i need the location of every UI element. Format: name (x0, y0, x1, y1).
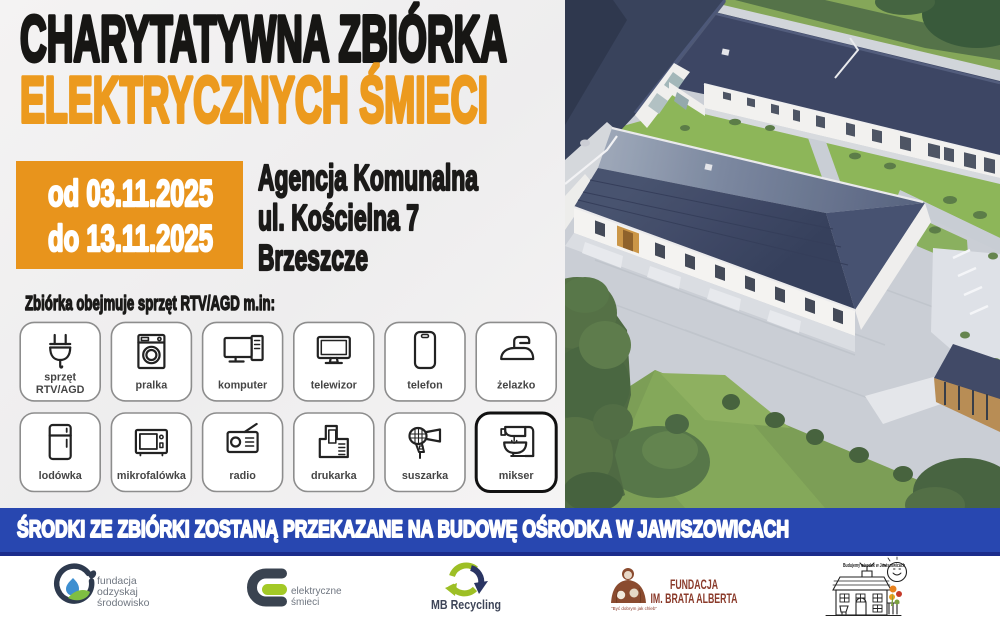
svg-text:RTV/AGD: RTV/AGD (36, 384, 85, 396)
svg-text:mikrofalówka: mikrofalówka (117, 470, 187, 482)
svg-text:telewizor: telewizor (311, 379, 358, 391)
svg-text:radio: radio (229, 470, 256, 482)
svg-text:ŚRODKI ZE ZBIÓRKI ZOSTANĄ PRZE: ŚRODKI ZE ZBIÓRKI ZOSTANĄ PRZEKAZANE NA … (17, 515, 789, 543)
svg-text:mikser: mikser (499, 470, 535, 482)
svg-text:Agencja Komunalna: Agencja Komunalna (258, 157, 479, 198)
svg-text:komputer: komputer (218, 379, 268, 391)
svg-text:od 03.11.2025: od 03.11.2025 (48, 173, 213, 214)
svg-text:sprzęt: sprzęt (44, 371, 76, 383)
svg-text:śmieci: śmieci (291, 597, 319, 608)
svg-text:telefon: telefon (407, 379, 442, 391)
svg-text:środowisko: środowisko (97, 597, 150, 609)
svg-text:żelazko: żelazko (497, 379, 536, 391)
svg-text:drukarka: drukarka (311, 470, 358, 482)
svg-text:pralka: pralka (135, 379, 168, 391)
svg-text:ul. Kościelna 7: ul. Kościelna 7 (258, 197, 419, 238)
svg-text:Brzeszcze: Brzeszcze (258, 237, 368, 278)
svg-text:MB Recycling: MB Recycling (431, 598, 501, 612)
svg-text:IM. BRATA ALBERTA: IM. BRATA ALBERTA (651, 590, 738, 606)
svg-text:do 13.11.2025: do 13.11.2025 (48, 218, 213, 259)
svg-text:elektryczne: elektryczne (291, 586, 342, 597)
svg-text:ELEKTRYCZNYCH ŚMIECI: ELEKTRYCZNYCH ŚMIECI (20, 63, 488, 136)
svg-text:Budujemy ośrodek w Jawiszowica: Budujemy ośrodek w Jawiszowicach (843, 563, 905, 569)
svg-text:Zbiórka obejmuje sprzęt RTV/AG: Zbiórka obejmuje sprzęt RTV/AGD m.in: (25, 293, 275, 315)
svg-text:"Być dobrym jak chleb": "Być dobrym jak chleb" (611, 606, 657, 611)
svg-text:suszarka: suszarka (402, 470, 449, 482)
svg-text:lodówka: lodówka (39, 470, 83, 482)
